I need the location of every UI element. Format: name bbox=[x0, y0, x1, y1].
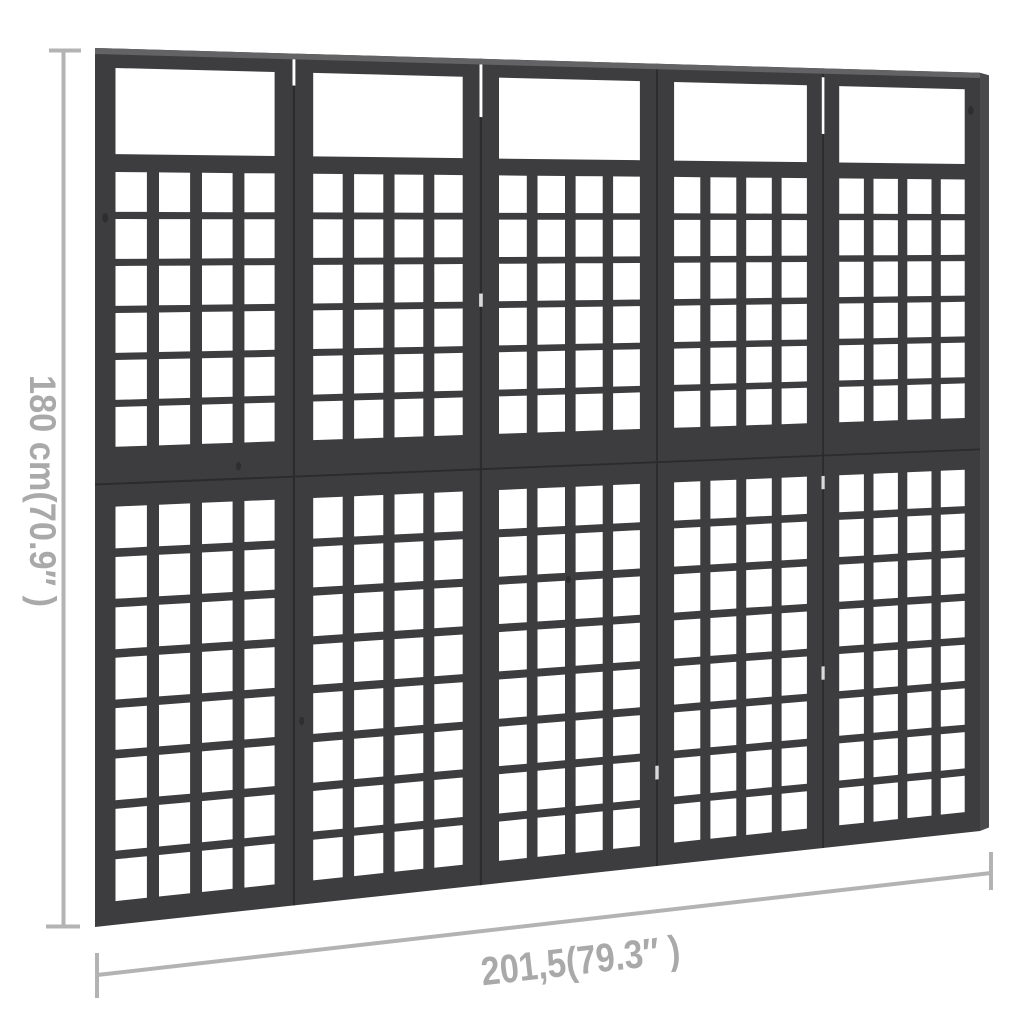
svg-text:180 cm(70.9″ ): 180 cm(70.9″ ) bbox=[22, 375, 63, 607]
